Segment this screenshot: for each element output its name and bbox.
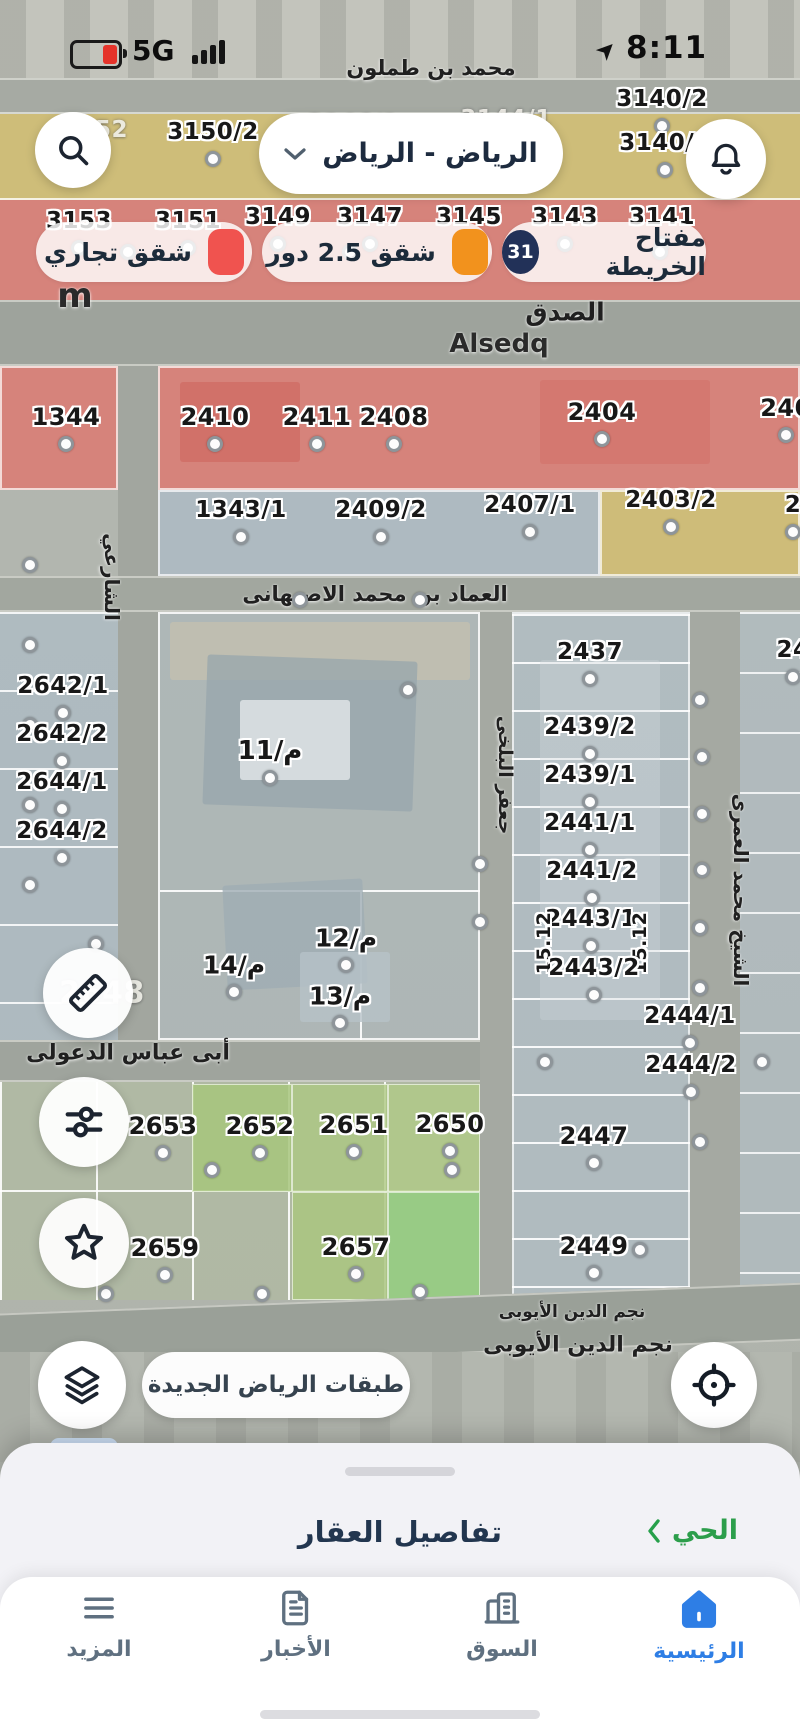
parcel-dot — [346, 1144, 362, 1160]
parcel-label[interactable]: 2407/1 — [484, 492, 575, 518]
map-key-count-badge: 31 — [502, 230, 539, 274]
parcel-dot — [442, 1143, 458, 1159]
street-label: جعفر البلخى — [494, 716, 516, 835]
parcel-dot — [692, 692, 708, 708]
parcel-dot — [694, 862, 710, 878]
home-indicator[interactable] — [260, 1710, 540, 1719]
measure-button[interactable] — [43, 948, 133, 1038]
star-icon — [60, 1219, 108, 1267]
parcel-dot — [157, 1267, 173, 1283]
parcel-label[interactable]: 2443/1 — [545, 906, 636, 932]
parcel-label[interactable]: 2437 — [557, 639, 623, 665]
street-label: m — [57, 276, 92, 316]
bell-icon — [705, 138, 747, 180]
parcel-label[interactable]: م/14 — [203, 951, 265, 980]
parcel-label[interactable]: 2410 — [181, 403, 250, 431]
parcel-label[interactable]: 2657 — [322, 1233, 391, 1261]
parcel-dot — [22, 557, 38, 573]
parcel-dot — [22, 797, 38, 813]
parcel-dot — [226, 984, 242, 1000]
street-label: نجم الدين الأيوبى — [483, 1333, 673, 1358]
my-location-button[interactable] — [671, 1342, 757, 1428]
parcel-label[interactable]: 2441/2 — [546, 858, 637, 884]
nav-label: الأخبار — [261, 1637, 331, 1662]
parcel-dot — [582, 671, 598, 687]
parcel-dot — [22, 637, 38, 653]
parcel-label[interactable]: 2644/2 — [16, 818, 107, 844]
signal-bars-icon — [192, 38, 232, 64]
parcel-label[interactable]: م/12 — [315, 924, 377, 953]
filters-button[interactable] — [39, 1077, 129, 1167]
parcel-label[interactable]: 2404 — [568, 398, 637, 426]
parcel-dot — [632, 1242, 648, 1258]
sliders-icon — [61, 1099, 107, 1145]
battery-icon — [70, 40, 122, 69]
parcel-dot — [472, 914, 488, 930]
parcel-dot — [204, 1162, 220, 1178]
parcel-label[interactable]: 2447 — [560, 1122, 629, 1150]
street-label: العماد بن محمد الاصبهانى — [242, 582, 507, 606]
parcel-dot — [692, 1134, 708, 1150]
parcel-dot — [22, 877, 38, 893]
parcel-dot — [348, 1266, 364, 1282]
ruler-icon — [65, 970, 111, 1016]
parcel-label[interactable]: 2653 — [129, 1112, 198, 1140]
map-key-button[interactable]: 31 مفتاح الخريطة — [502, 222, 706, 282]
parcel-dot — [155, 1145, 171, 1161]
parcel-dot — [683, 1084, 699, 1100]
news-icon — [275, 1587, 317, 1629]
drag-handle[interactable] — [345, 1467, 455, 1476]
road-alsedq — [0, 300, 800, 366]
nav-item-home[interactable]: الرئيسية — [629, 1587, 769, 1664]
crosshair-icon — [691, 1362, 737, 1408]
parcel-label[interactable]: 24 — [776, 637, 800, 663]
parcel-dot — [98, 1286, 114, 1302]
layers-icon — [60, 1363, 104, 1407]
parcel-dot — [54, 850, 70, 866]
parcel-dot — [254, 1286, 270, 1302]
parcel-dot — [412, 1284, 428, 1300]
parcel-dot — [207, 436, 223, 452]
chevron-left-icon — [646, 1518, 662, 1544]
parcel-label[interactable]: 2403/2 — [625, 487, 716, 513]
search-icon — [55, 132, 91, 168]
parcel-label[interactable]: 2411 — [283, 403, 352, 431]
network-type-label: 5G — [132, 34, 174, 67]
parcel-dot — [537, 1054, 553, 1070]
parcel-label[interactable]: م/13 — [309, 982, 371, 1011]
parcel-dot — [586, 1265, 602, 1281]
street-label: الشارعي — [100, 533, 124, 621]
legend-swatch-duplex — [452, 229, 488, 275]
search-button[interactable] — [35, 112, 111, 188]
parcel-dot — [692, 920, 708, 936]
parcel-dot — [233, 529, 249, 545]
parcel-dot — [472, 856, 488, 872]
parcel-dot — [582, 794, 598, 810]
parcel-label[interactable]: 2408 — [360, 403, 429, 431]
parcel-dot — [663, 519, 679, 535]
nav-label: الرئيسية — [653, 1639, 744, 1664]
parcel-label[interactable]: 3150/2 — [167, 119, 258, 145]
parcel-label[interactable]: 1343/1 — [195, 497, 286, 523]
layers-pill-label: طبقات الرياض الجديدة — [148, 1372, 404, 1398]
parcel-dot — [205, 151, 221, 167]
menu-icon — [78, 1587, 120, 1629]
parcel-label[interactable]: 2444/2 — [645, 1052, 736, 1078]
parcel-dot — [252, 1145, 268, 1161]
parcel-label[interactable]: 2650 — [416, 1110, 485, 1138]
parcel-dot — [785, 669, 800, 685]
bottom-nav: المزيد الأخبار السوق — [0, 1577, 800, 1732]
parcel-dot — [309, 436, 325, 452]
parcel-label[interactable]: 3140/2 — [616, 86, 707, 112]
parcel-label[interactable]: 2652 — [226, 1112, 295, 1140]
chevron-down-icon — [284, 147, 306, 161]
parcel-label[interactable]: 2 — [785, 492, 800, 518]
parcel-dot — [778, 427, 794, 443]
map-key-label: مفتاح الخريطة — [555, 223, 706, 281]
legend-item-duplex: شقق 2.5 دور — [262, 222, 492, 282]
green-parcel-cell — [388, 1192, 480, 1300]
parcel-dot — [522, 524, 538, 540]
status-bar: 5G ➤ 8:11 — [0, 34, 800, 74]
street-label: الشيخ محمد العمرى — [729, 794, 753, 987]
parcel-label[interactable]: 2659 — [131, 1234, 200, 1262]
street-label: Alsedq — [449, 329, 548, 359]
parcel-dot — [754, 1054, 770, 1070]
legend-label: شقق 2.5 دور — [266, 238, 436, 267]
parcel-dot — [582, 746, 598, 762]
parcel-dot — [58, 436, 74, 452]
green-parcel-cell — [388, 1084, 480, 1192]
parcel-dot — [400, 682, 416, 698]
parcel-dot — [694, 806, 710, 822]
legend-item-commercial: شقق تجاري — [36, 222, 252, 282]
parcel-dot — [584, 890, 600, 906]
home-icon — [677, 1587, 721, 1631]
city-selector[interactable]: الرياض - الرياض — [259, 113, 563, 194]
nav-item-more[interactable]: المزيد — [29, 1587, 169, 1662]
parcel-dot — [694, 749, 710, 765]
parcel-dot — [586, 1155, 602, 1171]
parcel-label[interactable]: 1344 — [32, 403, 101, 431]
app-screen: محمد بن طملونالصدقAlsedqالعماد بن محمد ا… — [0, 0, 800, 1732]
parcel-dot — [657, 162, 673, 178]
legend-swatch-commercial — [208, 229, 244, 275]
parcel-dot — [332, 1015, 348, 1031]
legend-label: شقق تجاري — [44, 238, 192, 267]
parcel-label[interactable]: 2449 — [560, 1232, 629, 1260]
parcel-label[interactable]: 2441/1 — [544, 810, 635, 836]
district-link-label: الحي — [672, 1515, 738, 1546]
parcel-label[interactable]: 2444/1 — [644, 1003, 735, 1029]
parcel-label[interactable]: م/11 — [238, 736, 303, 766]
parcel-dot — [292, 592, 308, 608]
parcel-dot — [583, 938, 599, 954]
parcel-dot — [594, 431, 610, 447]
parcel-dot — [582, 842, 598, 858]
parcel-label[interactable]: 2642/1 — [17, 673, 108, 699]
parcel-label[interactable]: 2651 — [320, 1111, 389, 1139]
parcel-dot — [386, 436, 402, 452]
parcel-label[interactable]: 2439/2 — [544, 714, 635, 740]
parcel-label[interactable]: 2644/1 — [16, 769, 107, 795]
parcel-dot — [412, 592, 428, 608]
street-label: نجم الدين الأيوبى — [499, 1302, 646, 1322]
parcel-label[interactable]: 2443/2 — [548, 955, 639, 981]
parcel-dot — [54, 801, 70, 817]
parcel-dot — [682, 1035, 698, 1051]
parcel-label[interactable]: 2439/1 — [544, 762, 635, 788]
street-label: الصدق — [525, 298, 604, 327]
parcel-dot — [444, 1162, 460, 1178]
nav-label: السوق — [466, 1637, 538, 1662]
street-label: أبى عباس الدعولى — [26, 1041, 230, 1066]
nav-item-market[interactable]: السوق — [432, 1587, 572, 1662]
parcel-dot — [262, 770, 278, 786]
parcel-dot — [692, 980, 708, 996]
parcel-label[interactable]: 2409/2 — [335, 497, 426, 523]
clock-label: 8:11 — [626, 30, 707, 66]
nav-label: المزيد — [66, 1637, 131, 1662]
favorites-button[interactable] — [39, 1198, 129, 1288]
layers-button[interactable] — [38, 1341, 126, 1429]
market-icon — [481, 1587, 523, 1629]
district-link[interactable]: الحي — [646, 1515, 738, 1546]
parcel-dot — [338, 957, 354, 973]
parcel-dot — [54, 753, 70, 769]
city-selector-label: الرياض - الرياض — [322, 138, 538, 169]
parcel-dot — [55, 705, 71, 721]
parcel-dot — [785, 524, 800, 540]
parcel-dot — [373, 529, 389, 545]
parcel-label[interactable]: 240 — [760, 394, 800, 422]
location-arrow-icon: ➤ — [589, 33, 623, 67]
notifications-button[interactable] — [686, 119, 766, 199]
nav-item-news[interactable]: الأخبار — [226, 1587, 366, 1662]
parcel-label[interactable]: 2642/2 — [16, 721, 107, 747]
parcel-dot — [586, 987, 602, 1003]
layers-pill-button[interactable]: طبقات الرياض الجديدة — [142, 1352, 410, 1418]
